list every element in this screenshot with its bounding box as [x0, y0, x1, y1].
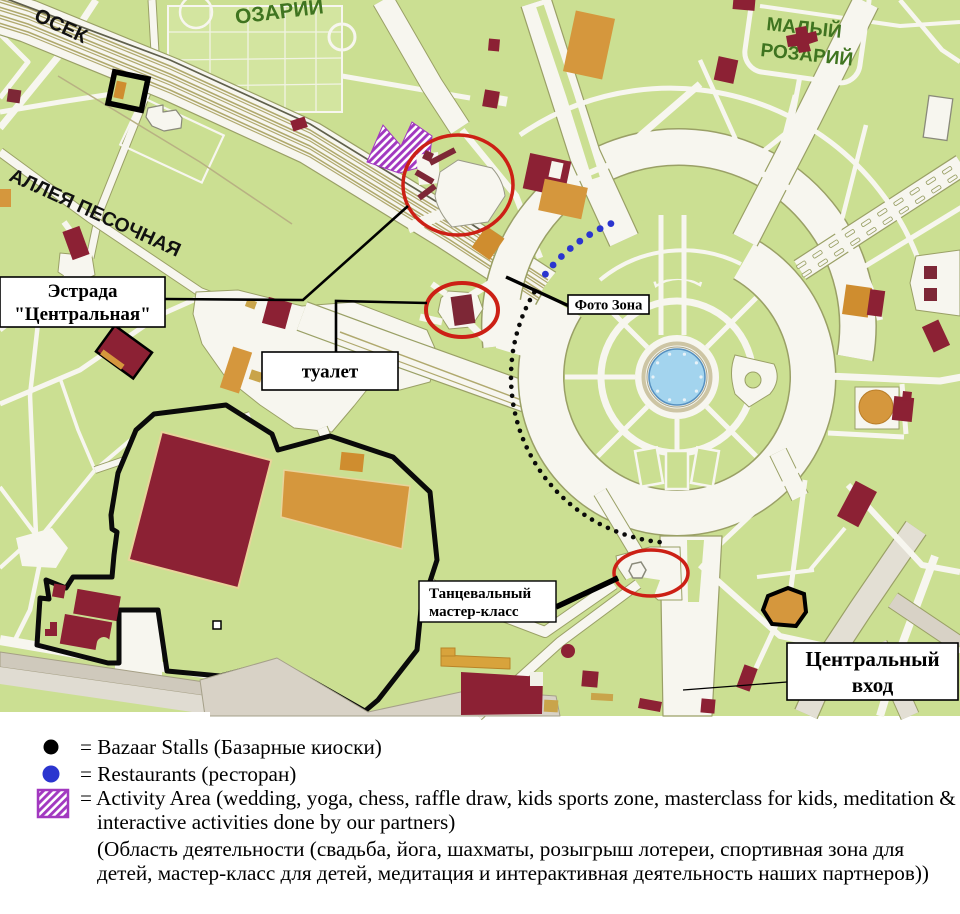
svg-text:= Restaurants (ресторан): = Restaurants (ресторан): [80, 762, 296, 786]
svg-text:(Область деятельности (свадьба: (Область деятельности (свадьба, йога, ша…: [97, 837, 904, 861]
svg-text:interactive activities done by: interactive activities done by our partn…: [97, 810, 455, 834]
svg-text:туалет: туалет: [302, 362, 359, 383]
svg-text:"Центральная": "Центральная": [14, 304, 151, 325]
svg-text:Центральный: Центральный: [805, 647, 939, 671]
svg-text:Танцевальный: Танцевальный: [429, 586, 532, 602]
svg-text:Эстрада: Эстрада: [47, 281, 118, 302]
svg-text:мастер-класс: мастер-класс: [429, 604, 519, 620]
svg-text:детей, мастер-класс для детей,: детей, мастер-класс для детей, медитация…: [97, 861, 929, 885]
svg-text:= Activity Area (wedding, yoga: = Activity Area (wedding, yoga, chess, r…: [80, 786, 956, 810]
svg-text:= Bazaar Stalls (Базарные киос: = Bazaar Stalls (Базарные киоски): [80, 735, 382, 759]
svg-text:вход: вход: [852, 673, 894, 697]
svg-text:Фото Зона: Фото Зона: [575, 298, 644, 314]
